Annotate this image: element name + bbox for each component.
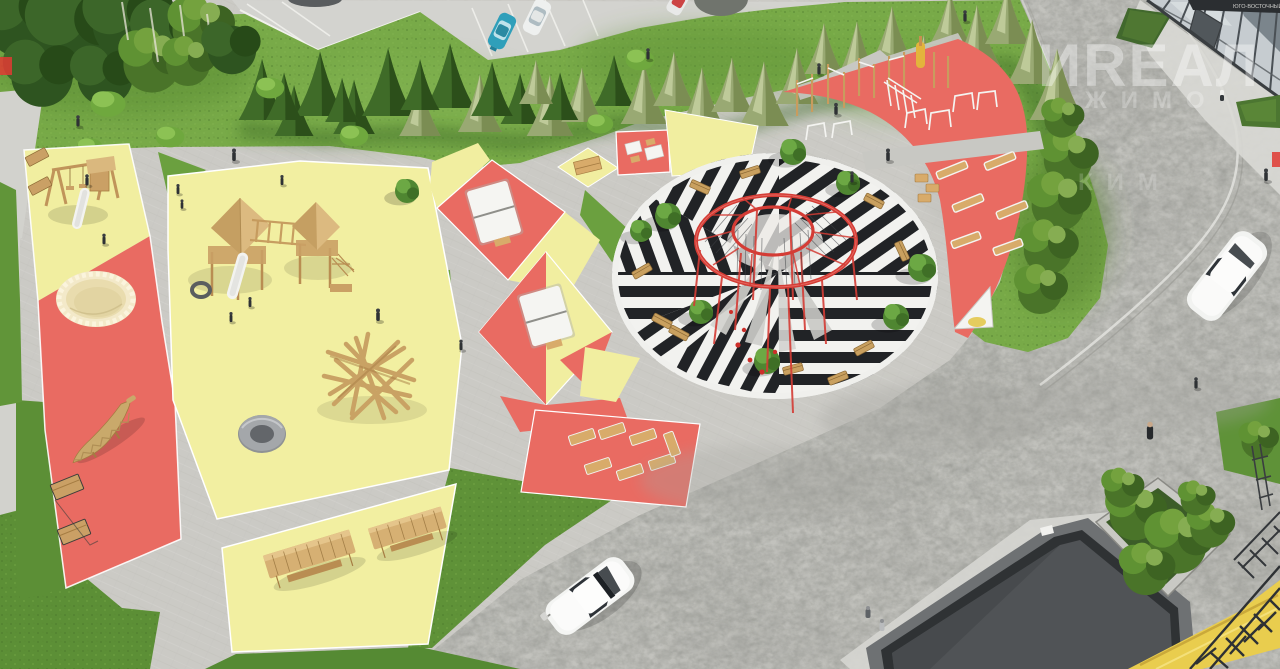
svg-text:ЖИМО: ЖИМО xyxy=(1084,87,1219,114)
svg-text:ЮГО-ВОСТОЧНЫЙ: ЮГО-ВОСТОЧНЫЙ xyxy=(1233,2,1280,10)
svg-text:КИМ: КИМ xyxy=(1078,169,1172,196)
